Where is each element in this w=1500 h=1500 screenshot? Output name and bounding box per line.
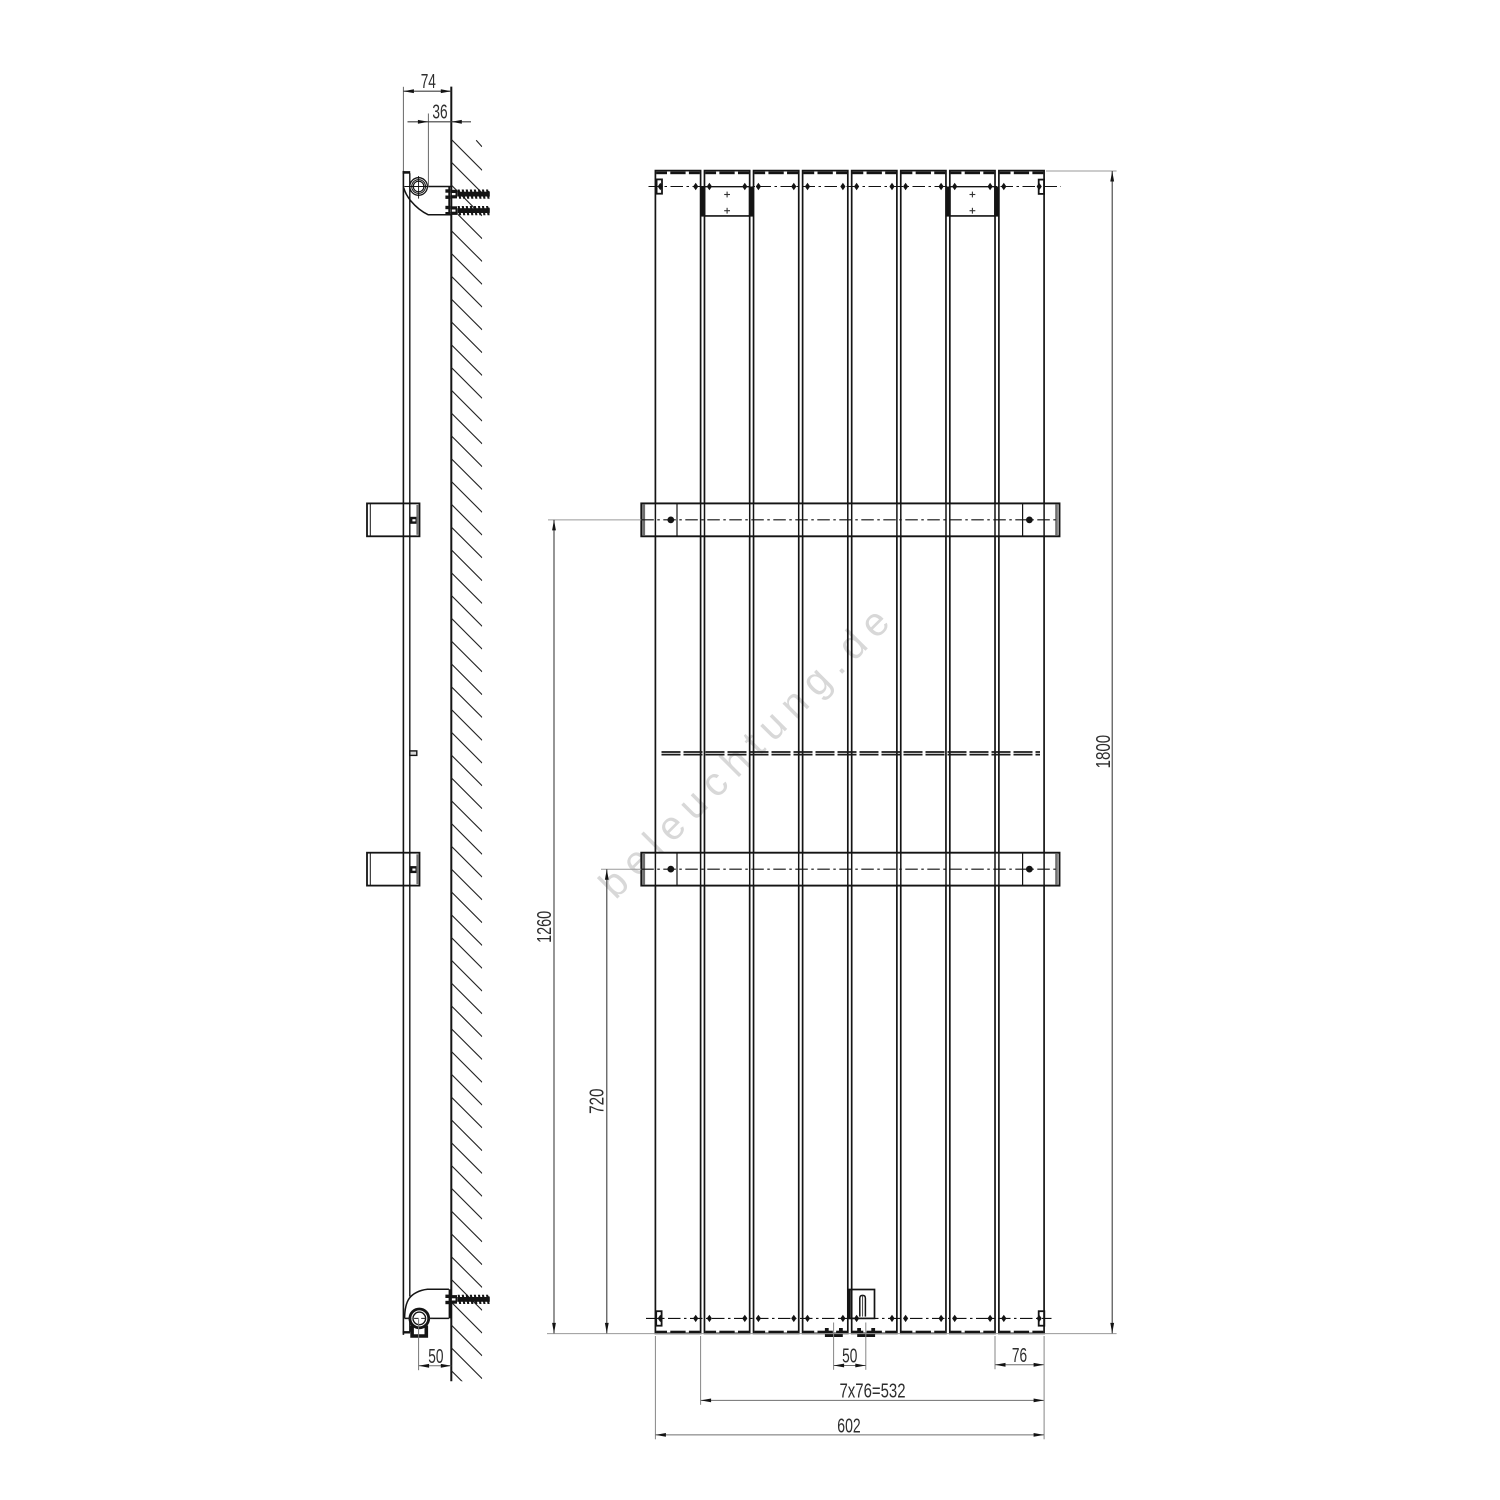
svg-text:7x76=532: 7x76=532 xyxy=(840,1381,906,1403)
svg-text:1260: 1260 xyxy=(534,911,556,943)
svg-text:74: 74 xyxy=(421,71,436,93)
svg-text:36: 36 xyxy=(432,101,447,123)
svg-text:720: 720 xyxy=(586,1089,608,1114)
svg-text:50: 50 xyxy=(842,1346,857,1368)
svg-text:602: 602 xyxy=(837,1416,860,1438)
svg-text:1800: 1800 xyxy=(1093,735,1115,769)
svg-text:50: 50 xyxy=(428,1346,443,1368)
svg-text:76: 76 xyxy=(1012,1345,1027,1367)
